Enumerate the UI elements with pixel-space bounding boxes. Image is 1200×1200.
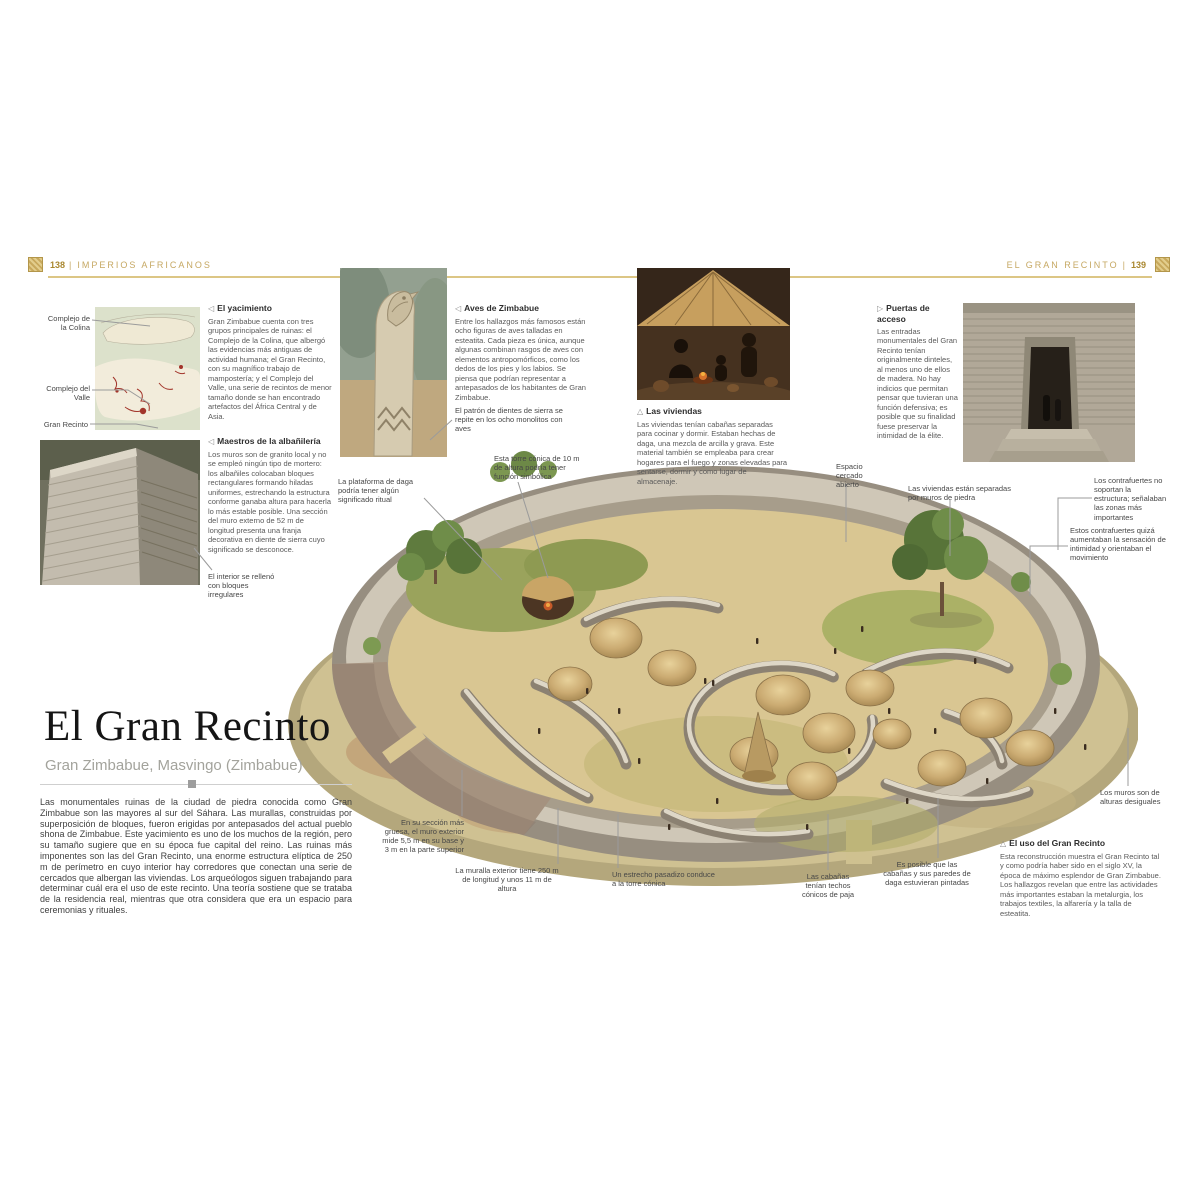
- triangle-left-icon: ◁: [455, 304, 461, 313]
- caption-interior-relleno: El interior se rellenó con bloques irreg…: [208, 572, 280, 599]
- feature-heading: Maestros de la albañilería: [217, 436, 320, 446]
- caption-espacio-cercado: Espacio cercado abierto: [836, 462, 886, 489]
- feature-albanileria: ◁Maestros de la albañilería Los muros so…: [208, 436, 332, 554]
- book-spread: 138|IMPERIOS AFRICANOS EL GRAN RECINTO|1…: [0, 0, 1200, 1200]
- feature-viviendas: △Las viviendas Las viviendas tenían caba…: [637, 406, 789, 486]
- caption-cabanas-pintadas: Es posible que las cabañas y sus paredes…: [882, 860, 972, 887]
- caption-seccion-gruesa: En su sección más gruesa, el muro exteri…: [380, 818, 464, 855]
- caption-plataforma-daga: La plataforma de daga podría tener algún…: [338, 477, 430, 504]
- page-number-right: 139: [1131, 260, 1146, 270]
- page-title: El Gran Recinto: [44, 702, 331, 751]
- page-subtitle: Gran Zimbabue, Masvingo (Zimbabue): [45, 757, 303, 774]
- section-title-left: IMPERIOS AFRICANOS: [77, 260, 212, 270]
- feature-heading: El yacimiento: [217, 303, 272, 313]
- site-map-image: [95, 307, 200, 430]
- running-head-right: EL GRAN RECINTO|139: [1007, 260, 1146, 270]
- feature-el-yacimiento: ◁El yacimiento Gran Zimbabue cuenta con …: [208, 303, 332, 421]
- caption-viviendas-muros: Las viviendas están separadas por muros …: [908, 484, 1018, 502]
- triangle-up-icon: △: [1000, 839, 1006, 848]
- feature-uso: △El uso del Gran Recinto Esta reconstruc…: [1000, 838, 1162, 918]
- caption-cabanas-techos: Las cabañas tenían techos cónicos de paj…: [796, 872, 860, 899]
- map-label-gran-recinto: Gran Recinto: [36, 420, 88, 429]
- caption-muros-desiguales: Los muros son de alturas desiguales: [1100, 788, 1164, 806]
- title-divider: [40, 784, 352, 785]
- section-title-right: EL GRAN RECINTO: [1007, 260, 1119, 270]
- feature-heading: Puertas de acceso: [877, 303, 930, 324]
- map-label-valle: Complejo del Valle: [40, 384, 90, 402]
- header-rule: [48, 276, 1152, 278]
- feature-heading: Aves de Zimbabue: [464, 303, 539, 313]
- divider-square-icon: [188, 780, 196, 788]
- feature-body: Esta reconstrucción muestra el Gran Reci…: [1000, 852, 1162, 919]
- running-head-left: 138|IMPERIOS AFRICANOS: [50, 260, 212, 270]
- triangle-left-icon: ◁: [208, 437, 214, 446]
- triangle-right-icon: ▷: [877, 304, 883, 313]
- caption-muralla-exterior: La muralla exterior tiene 250 m de longi…: [452, 866, 562, 893]
- map-label-colina: Complejo de la Colina: [40, 314, 90, 332]
- intro-paragraph: Las monumentales ruinas de la ciudad de …: [40, 797, 352, 916]
- feature-body: Las entradas monumentales del Gran Recin…: [877, 327, 959, 441]
- zimbabwe-bird-photo: [340, 268, 447, 457]
- feature-heading: El uso del Gran Recinto: [1009, 838, 1105, 848]
- stone-wall-photo: [40, 440, 200, 585]
- feature-body: Gran Zimbabue cuenta con tres grupos pri…: [208, 317, 332, 422]
- triangle-left-icon: ◁: [208, 304, 214, 313]
- feature-body: Las viviendas tenían cabañas separadas p…: [637, 420, 789, 487]
- triangle-up-icon: △: [637, 407, 643, 416]
- caption-torre-conica: Esta torre cónica de 10 m de altura podr…: [494, 454, 586, 481]
- caption-contrafuertes-soporte: Los contrafuertes no soportan la estruct…: [1094, 476, 1168, 522]
- corner-ornament-icon: [28, 257, 43, 272]
- feature-heading: Las viviendas: [646, 406, 702, 416]
- feature-body: Entre los hallazgos más famosos están oc…: [455, 317, 587, 403]
- page-number-left: 138: [50, 260, 65, 270]
- hut-interior-photo: [637, 268, 790, 400]
- feature-aves: ◁Aves de Zimbabue Entre los hallazgos má…: [455, 303, 587, 402]
- feature-puertas: ▷Puertas de acceso Las entradas monument…: [877, 303, 959, 441]
- caption-contrafuertes-intimidad: Estos contrafuertes quizá aumentaban la …: [1070, 526, 1166, 563]
- corner-ornament-icon: [1155, 257, 1170, 272]
- caption-patron-sierra: El patrón de dientes de sierra se repite…: [455, 406, 565, 433]
- feature-body: Los muros son de granito local y no se e…: [208, 450, 332, 555]
- caption-pasadizo: Un estrecho pasadizo conduce a la torre …: [612, 870, 718, 888]
